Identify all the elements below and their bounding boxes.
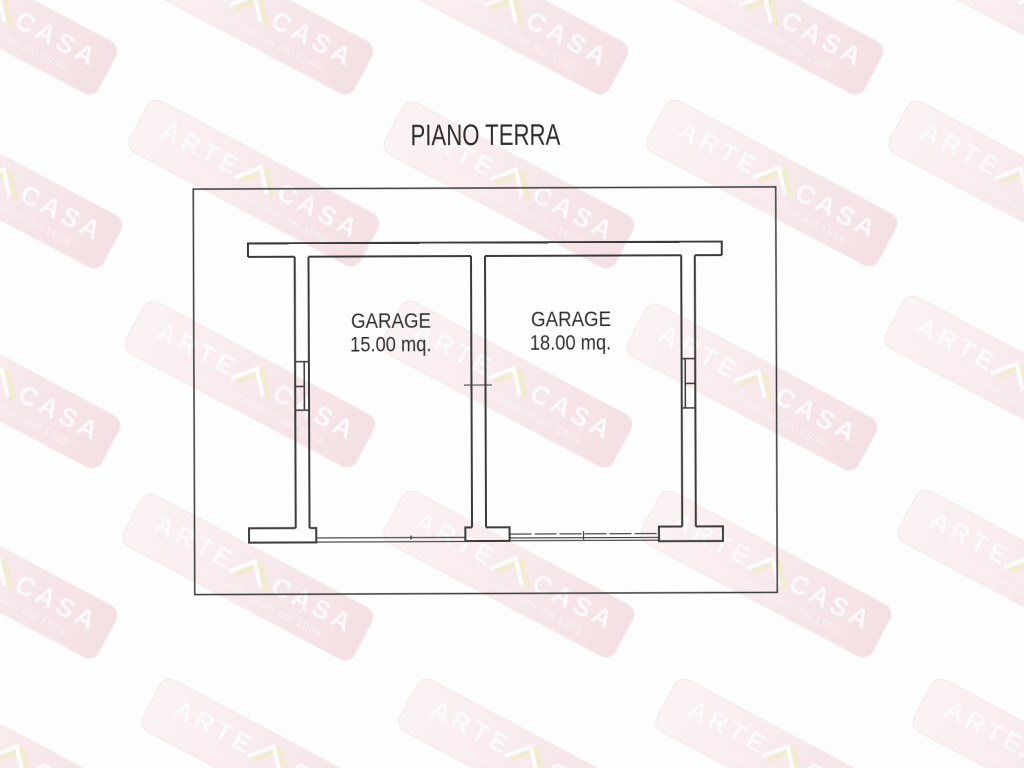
svg-text:18.00 mq.: 18.00 mq.	[530, 331, 611, 355]
svg-text:15.00 mq.: 15.00 mq.	[350, 333, 431, 357]
svg-text:PIANO TERRA: PIANO TERRA	[410, 117, 560, 151]
svg-text:GARAGE: GARAGE	[531, 308, 611, 331]
svg-text:GARAGE: GARAGE	[351, 310, 431, 333]
